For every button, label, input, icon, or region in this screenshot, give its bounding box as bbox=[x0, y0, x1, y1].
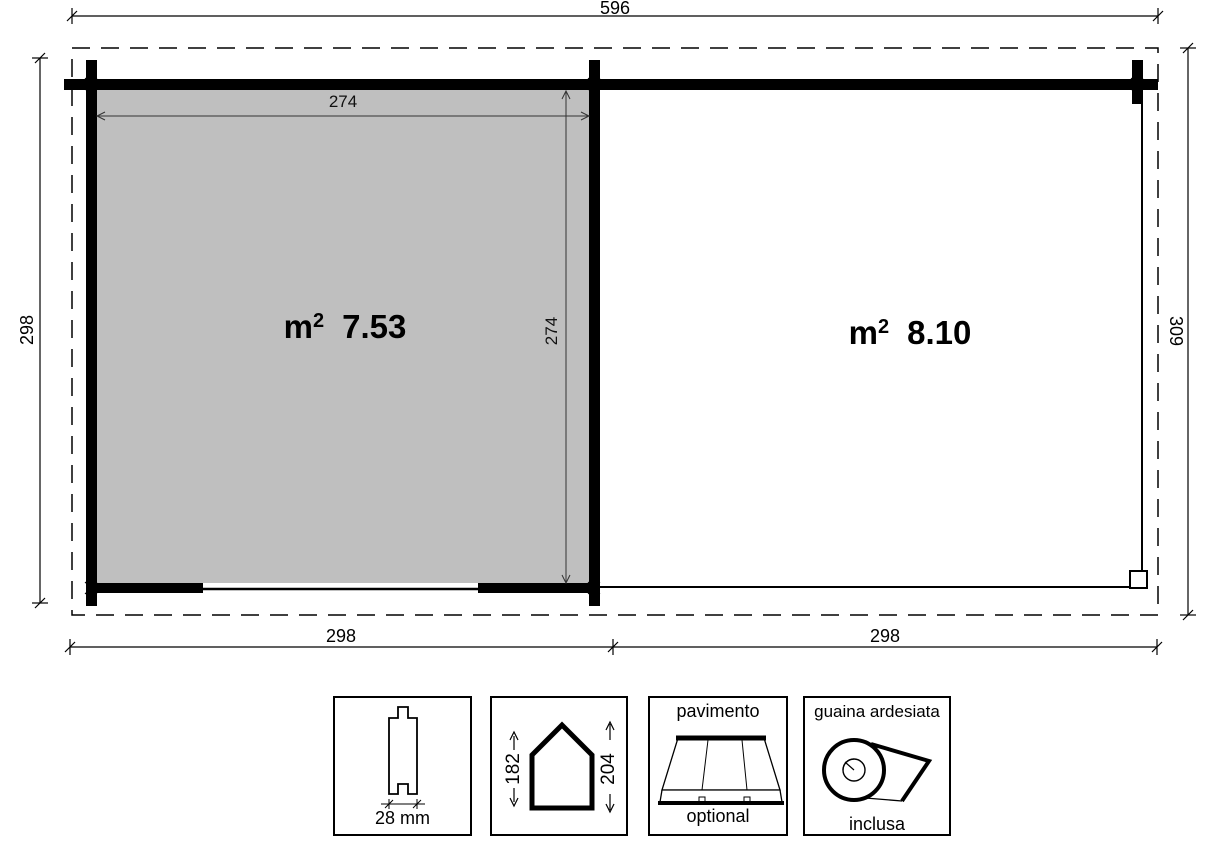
wall-thickness-label: 28 mm bbox=[335, 808, 470, 829]
left-room-area-label: m27.53 bbox=[195, 308, 495, 346]
area-value: 7.53 bbox=[342, 308, 406, 345]
dim-inner-depth: 274 bbox=[543, 301, 561, 361]
dim-inner-width: 274 bbox=[313, 92, 373, 112]
left-wall bbox=[86, 60, 97, 606]
legend-box-wall-thickness: 28 mm bbox=[333, 696, 472, 836]
area-unit: m bbox=[284, 308, 313, 345]
area-value: 8.10 bbox=[907, 314, 971, 351]
roof-cover-note: inclusa bbox=[805, 814, 949, 835]
ridge-height-label: 204 bbox=[600, 744, 618, 794]
dim-bottom-left-width: 298 bbox=[301, 626, 381, 647]
area-superscript: 2 bbox=[313, 310, 324, 332]
legend-box-heights: 182 204 bbox=[490, 696, 628, 836]
legend-box-floor: pavimento optional bbox=[648, 696, 788, 836]
bottom-wall-left-segment bbox=[86, 583, 203, 593]
floor-note: optional bbox=[650, 806, 786, 827]
dim-right-depth: 309 bbox=[1167, 301, 1185, 361]
eave-height-label: 182 bbox=[505, 744, 523, 794]
bottom-wall-right-segment bbox=[478, 583, 600, 593]
legend-box-roof-cover: guaina ardesiata inclusa bbox=[803, 696, 951, 836]
dim-bottom-right-width: 298 bbox=[845, 626, 925, 647]
dim-left-depth: 298 bbox=[18, 300, 36, 360]
top-wall bbox=[64, 79, 1158, 90]
right-room-area-label: m28.10 bbox=[760, 314, 1060, 352]
area-superscript: 2 bbox=[878, 316, 889, 338]
floor-plan-page: 596 298 309 298 298 274 274 m27.53 m28.1… bbox=[0, 0, 1225, 843]
middle-wall bbox=[589, 60, 600, 606]
area-unit: m bbox=[849, 314, 878, 351]
canopy-corner-post bbox=[1130, 571, 1147, 588]
dim-overall-width: 596 bbox=[575, 0, 655, 19]
